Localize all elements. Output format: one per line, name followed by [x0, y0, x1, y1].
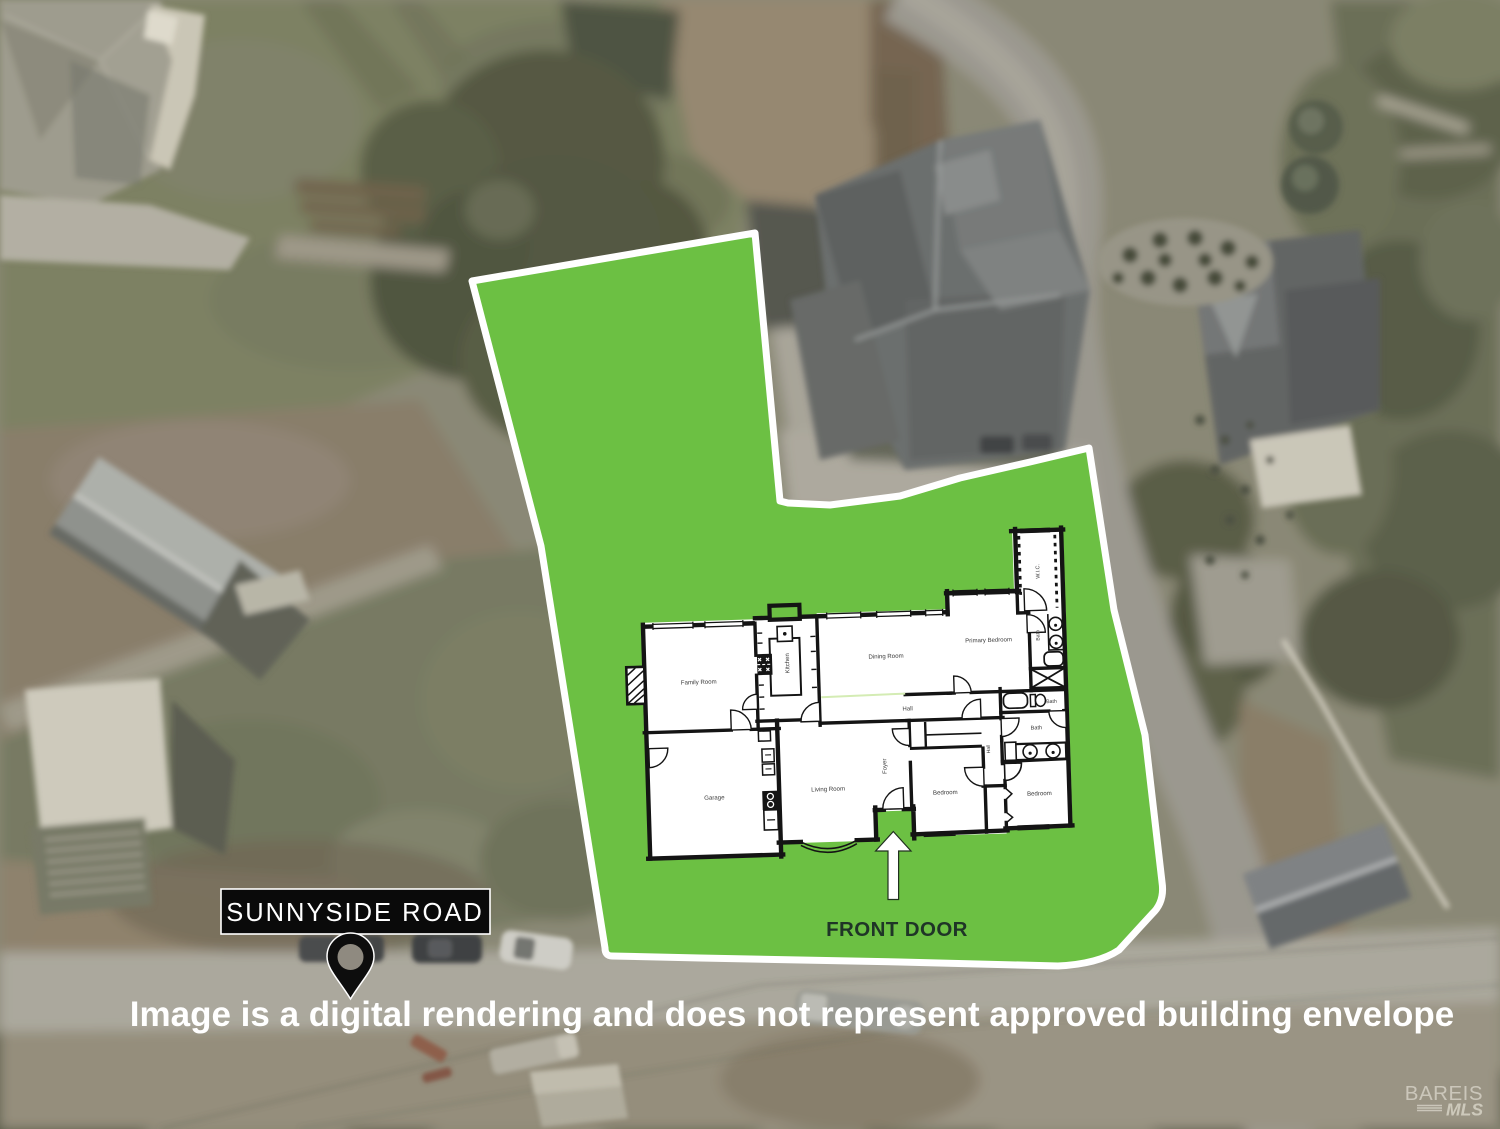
svg-text:W.I.C.: W.I.C. [1035, 564, 1041, 579]
svg-text:Living Room: Living Room [811, 786, 845, 794]
svg-text:FRONT DOOR: FRONT DOOR [826, 918, 968, 941]
svg-text:Hall: Hall [902, 706, 913, 712]
svg-text:Bath: Bath [1035, 630, 1041, 641]
svg-text:Foyer: Foyer [882, 758, 888, 774]
svg-text:Dining Room: Dining Room [868, 653, 903, 661]
svg-text:Kitchen: Kitchen [785, 653, 792, 673]
svg-text:Garage: Garage [704, 794, 725, 802]
svg-text:MLS: MLS [1446, 1100, 1483, 1120]
svg-text:Bedroom: Bedroom [933, 789, 958, 797]
svg-text:Hall: Hall [986, 745, 992, 754]
svg-text:Bath: Bath [1046, 699, 1057, 705]
svg-text:SUNNYSIDE ROAD: SUNNYSIDE ROAD [226, 899, 484, 927]
svg-text:Image is a digital rendering a: Image is a digital rendering and does no… [130, 995, 1454, 1034]
svg-text:Family Room: Family Room [681, 678, 717, 686]
svg-text:Bath: Bath [1031, 725, 1043, 731]
svg-text:Bedroom: Bedroom [1027, 790, 1052, 798]
